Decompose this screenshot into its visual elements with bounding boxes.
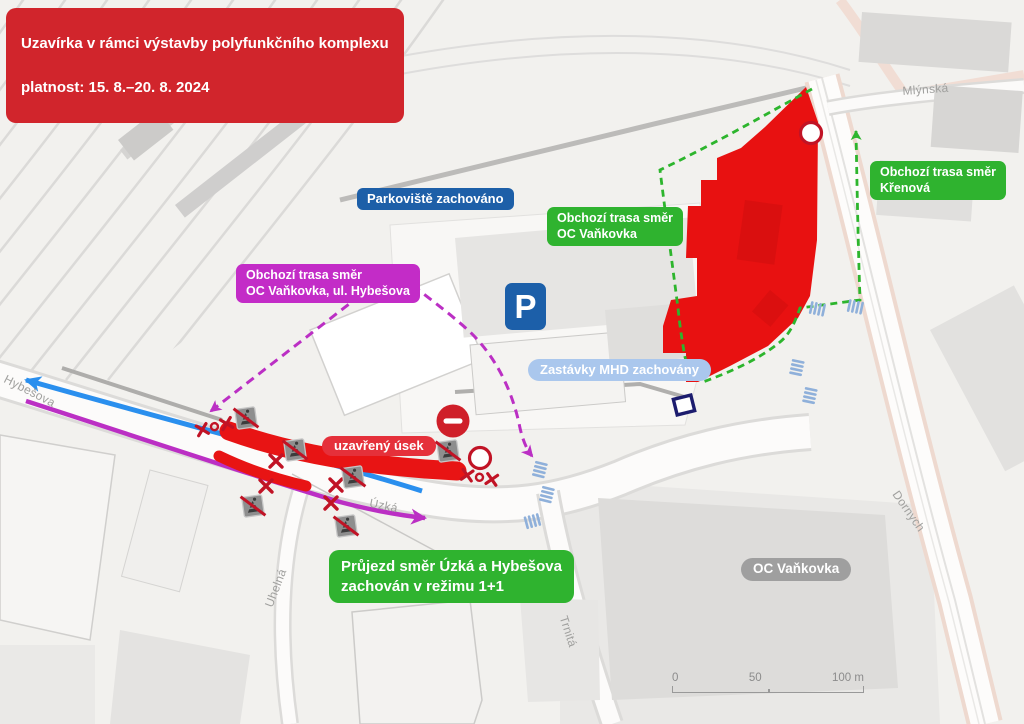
label-detour-hybesova: Obchozí trasa směr OC Vaňkovka, ul. Hybe… (236, 264, 420, 303)
scale-hundred: 100 m (832, 672, 864, 684)
crossed-pedestrian-crossing-sign-icon (341, 465, 366, 490)
closure-map: Uzavírka v rámci výstavby polyfunkčního … (0, 0, 1024, 724)
closure-point-circle-icon (470, 448, 491, 469)
parking-icon: P (505, 283, 546, 330)
mhd-stop-marker-icon (673, 395, 694, 415)
label-transit-mode: Průjezd směr Úzká a Hybešova zachován v … (329, 550, 574, 603)
scale-bar: 0 50 100 m (672, 672, 864, 693)
label-mhd-stops-kept: Zastávky MHD zachovány (528, 359, 711, 381)
crossed-pedestrian-crossing-sign-icon (283, 438, 308, 463)
banner-validity: platnost: 15. 8.–20. 8. 2024 (21, 80, 389, 95)
banner-title: Uzavírka v rámci výstavby polyfunkčního … (21, 36, 389, 51)
scale-fifty: 50 (749, 672, 762, 684)
scale-numbers: 0 50 100 m (672, 672, 864, 684)
label-oc-vankovka: OC Vaňkovka (741, 558, 851, 581)
scale-zero: 0 (672, 672, 678, 684)
crossed-pedestrian-crossing-sign-icon (334, 514, 359, 539)
label-closed-section: uzavřený úsek (322, 436, 436, 456)
closure-point-circle-icon (801, 123, 822, 144)
label-detour-krenova: Obchozí trasa směr Křenová (870, 161, 1006, 200)
crossed-pedestrian-crossing-sign-icon (241, 494, 266, 519)
crossed-pedestrian-crossing-sign-icon (436, 439, 461, 464)
no-entry-sign-icon (437, 405, 470, 438)
closure-banner: Uzavírka v rámci výstavby polyfunkčního … (6, 8, 404, 123)
crossed-pedestrian-crossing-sign-icon (234, 406, 259, 431)
label-parking-kept: Parkoviště zachováno (357, 188, 514, 210)
label-detour-vankovka: Obchozí trasa směr OC Vaňkovka (547, 207, 683, 246)
scale-line (672, 686, 864, 693)
